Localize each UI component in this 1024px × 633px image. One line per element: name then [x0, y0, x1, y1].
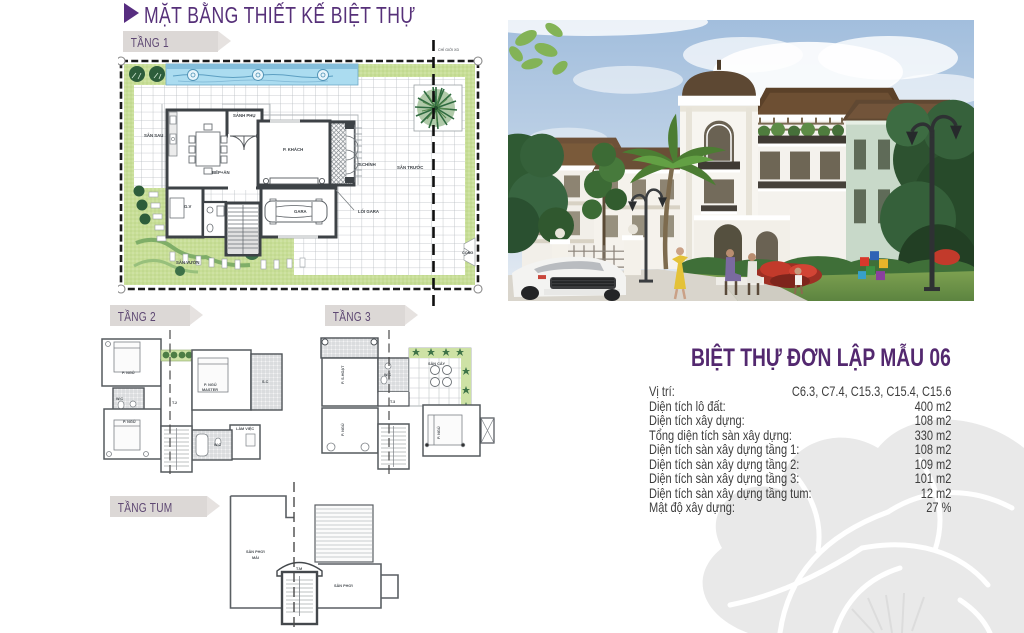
svg-text:P. KHÁCH: P. KHÁCH [283, 147, 303, 152]
svg-text:T.M: T.M [296, 567, 302, 571]
svg-text:P. NGỦ: P. NGỦ [340, 423, 345, 436]
svg-text:MÁI: MÁI [252, 555, 259, 560]
svg-text:T.3: T.3 [390, 400, 395, 404]
svg-text:SÂN SAU: SÂN SAU [144, 133, 163, 138]
svg-text:P. NGỦ: P. NGỦ [123, 419, 136, 424]
svg-text:P. NGỦ: P. NGỦ [436, 426, 441, 439]
svg-text:MASTER: MASTER [202, 388, 218, 392]
svg-text:LỐI GARA: LỐI GARA [358, 209, 379, 214]
svg-text:SÂN TRƯỚC: SÂN TRƯỚC [397, 165, 423, 170]
svg-text:S.C: S.C [262, 380, 269, 384]
svg-text:SÂN PHƠI: SÂN PHƠI [334, 583, 353, 588]
svg-text:W.C: W.C [384, 373, 391, 377]
svg-text:GARA: GARA [294, 209, 307, 214]
svg-text:SẢNH PHỤ: SẢNH PHỤ [233, 113, 255, 118]
svg-text:CHỈ GIỚI XD: CHỈ GIỚI XD [438, 47, 459, 52]
svg-text:SÂN VƯỜN: SÂN VƯỜN [176, 260, 199, 265]
svg-text:G.V: G.V [184, 204, 192, 209]
svg-text:CỔNG: CỔNG [462, 250, 473, 255]
svg-text:S.CHÍNH: S.CHÍNH [358, 162, 376, 167]
svg-text:W.C: W.C [214, 443, 221, 447]
svg-text:W.C: W.C [116, 397, 123, 401]
svg-text:SÂN PHƠI: SÂN PHƠI [246, 549, 265, 554]
svg-text:LÀM VIỆC: LÀM VIỆC [236, 426, 254, 431]
svg-text:BẾP+ĂN: BẾP+ĂN [212, 170, 230, 175]
svg-text:T.2: T.2 [172, 401, 177, 405]
svg-text:SÂN CÂY: SÂN CÂY [428, 361, 446, 366]
svg-text:P. NGỦ: P. NGỦ [122, 370, 135, 375]
svg-text:P. NGỦ: P. NGỦ [204, 382, 217, 387]
svg-text:P. S.HOẠT: P. S.HOẠT [341, 365, 345, 384]
